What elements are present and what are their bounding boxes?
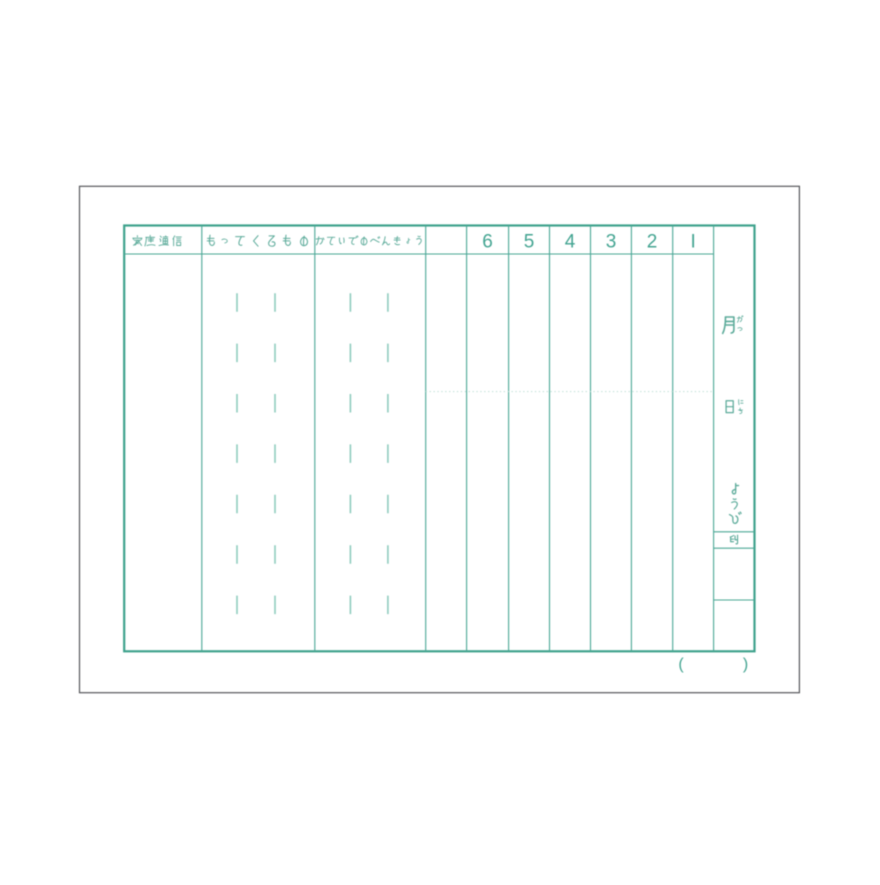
svg-text:3: 3: [606, 231, 617, 252]
svg-text:(: (: [678, 656, 684, 673]
svg-text:I: I: [691, 231, 696, 252]
svg-text:): ): [743, 656, 748, 673]
svg-text:4: 4: [565, 231, 576, 252]
svg-text:2: 2: [647, 231, 658, 252]
svg-text:5: 5: [524, 231, 535, 252]
svg-text:6: 6: [482, 231, 493, 252]
